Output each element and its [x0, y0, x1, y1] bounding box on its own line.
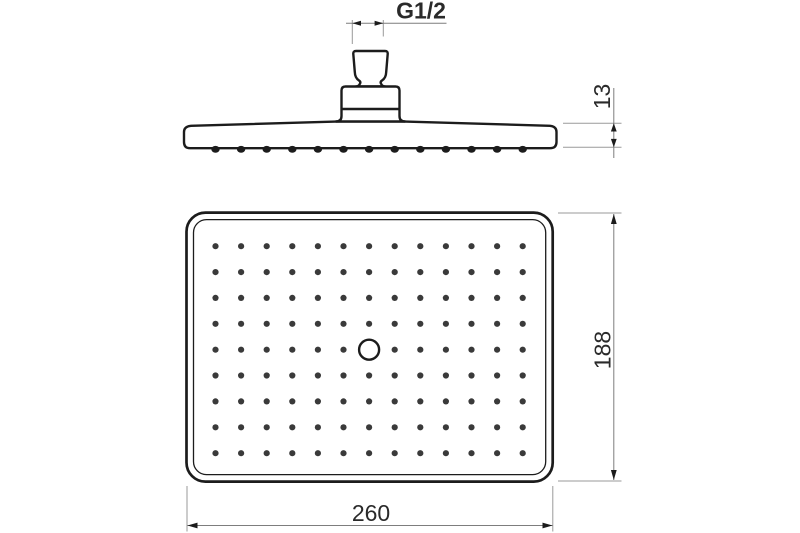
nozzle-dot [264, 450, 270, 456]
nozzle-dot [289, 269, 295, 275]
nozzle-dot [392, 243, 398, 249]
nozzle-dot [366, 398, 372, 404]
nozzle-dot [238, 321, 244, 327]
nozzle-dot [468, 450, 474, 456]
nozzle-dot [520, 295, 526, 301]
nozzle-dot [494, 269, 500, 275]
nozzle-dot [468, 243, 474, 249]
nozzle-bump [391, 146, 399, 153]
nozzle-dot [340, 295, 346, 301]
nozzle-dot [238, 347, 244, 353]
nozzle-dot [264, 269, 270, 275]
nozzle-dot [494, 450, 500, 456]
nozzle-dot [212, 295, 218, 301]
nozzle-dot [238, 372, 244, 378]
thickness-value-label: 13 [589, 84, 615, 110]
nozzle-bump [314, 146, 322, 153]
nozzle-dot [443, 295, 449, 301]
nozzle-dot [289, 321, 295, 327]
technical-drawing-canvas: G1/2 13 188 [0, 0, 800, 533]
nozzle-dot [417, 243, 423, 249]
nozzle-dot [264, 372, 270, 378]
nozzle-dot [494, 372, 500, 378]
thread-arrow-right [375, 21, 384, 26]
nozzle-dot [468, 347, 474, 353]
nozzle-bump [237, 146, 245, 153]
nozzle-dot [315, 450, 321, 456]
nozzle-dot [417, 424, 423, 430]
nozzle-dot [212, 372, 218, 378]
nozzle-dot [366, 321, 372, 327]
nozzle-bump [416, 146, 424, 153]
nozzle-dot [417, 372, 423, 378]
nozzle-dot [417, 295, 423, 301]
nozzle-dot [264, 424, 270, 430]
nozzle-bump [519, 146, 527, 153]
nozzle-dot [443, 398, 449, 404]
nozzle-dot [417, 398, 423, 404]
head-body-outline [184, 121, 557, 148]
collar-outline [336, 87, 405, 122]
nozzle-dot [289, 295, 295, 301]
nozzle-dot [315, 398, 321, 404]
nozzle-dot [392, 269, 398, 275]
nozzle-dot [520, 243, 526, 249]
nozzle-dot [289, 424, 295, 430]
nozzle-dot [494, 321, 500, 327]
nozzle-dot [520, 347, 526, 353]
nozzle-dot [264, 321, 270, 327]
nozzle-dot [468, 321, 474, 327]
nozzle-dot [238, 450, 244, 456]
nozzle-dot [264, 398, 270, 404]
height-arrow-bottom [611, 470, 617, 480]
nozzle-dot [340, 450, 346, 456]
nozzle-dot [520, 269, 526, 275]
nozzle-dot [366, 243, 372, 249]
nozzle-dot [443, 243, 449, 249]
nozzle-dot [315, 424, 321, 430]
nozzle-dot [417, 321, 423, 327]
height-value-label: 188 [590, 331, 616, 369]
nozzle-dot [443, 372, 449, 378]
nozzle-dot [443, 424, 449, 430]
thickness-arrow-top [611, 123, 617, 131]
nozzle-bump [263, 146, 271, 153]
nozzle-dot [443, 347, 449, 353]
nozzle-dot [392, 321, 398, 327]
nozzle-dot [212, 321, 218, 327]
nozzle-dot [315, 243, 321, 249]
nozzle-dot [289, 450, 295, 456]
nozzle-dot [315, 321, 321, 327]
nozzle-bump [288, 146, 296, 153]
nozzle-bump [211, 146, 219, 153]
nozzle-bump [493, 146, 501, 153]
nozzle-dot [417, 347, 423, 353]
face-view [187, 213, 553, 482]
nozzle-dot [520, 398, 526, 404]
nozzle-dot [315, 269, 321, 275]
nozzle-bump [339, 146, 347, 153]
nozzle-dot [238, 398, 244, 404]
nozzle-dot [212, 424, 218, 430]
nozzle-dot [264, 295, 270, 301]
nozzle-dot [468, 269, 474, 275]
nozzle-dot [494, 347, 500, 353]
center-outlet-circle [359, 340, 379, 360]
nozzle-dot [417, 450, 423, 456]
nozzle-dot [366, 424, 372, 430]
nozzle-dot [212, 398, 218, 404]
thickness-arrow-bottom [611, 139, 617, 147]
nozzle-dot [443, 450, 449, 456]
nozzle-dot [238, 269, 244, 275]
nozzle-dot [264, 347, 270, 353]
width-dimension: 260 [187, 486, 553, 532]
nozzle-dot [212, 450, 218, 456]
nozzle-dot [417, 269, 423, 275]
nozzle-dot [443, 321, 449, 327]
nozzle-dot [392, 372, 398, 378]
nozzle-dot [315, 347, 321, 353]
nozzle-dot [468, 424, 474, 430]
nozzle-dot [340, 243, 346, 249]
nozzle-dot [366, 295, 372, 301]
nozzle-dot [289, 398, 295, 404]
nozzle-dot [238, 295, 244, 301]
nozzle-dot [494, 295, 500, 301]
nozzle-dot [212, 269, 218, 275]
nozzle-dot [494, 398, 500, 404]
nozzle-dot [264, 243, 270, 249]
nozzle-dot [340, 269, 346, 275]
nozzle-dot [443, 269, 449, 275]
nozzle-dot [340, 424, 346, 430]
nozzle-bump [467, 146, 475, 153]
nozzle-dot [315, 295, 321, 301]
nozzle-dot [520, 424, 526, 430]
nozzle-dot [366, 269, 372, 275]
nozzle-dot [340, 347, 346, 353]
nozzle-dot [520, 450, 526, 456]
nozzle-dot [212, 347, 218, 353]
nozzle-bump [442, 146, 450, 153]
nozzle-bump [365, 146, 373, 153]
nozzle-dot [520, 321, 526, 327]
thread-dimension: G1/2 [346, 0, 447, 44]
nozzle-dot [289, 347, 295, 353]
nozzle-dot [392, 424, 398, 430]
nozzle-dot [392, 347, 398, 353]
width-value-label: 260 [352, 500, 390, 526]
height-arrow-top [611, 214, 617, 224]
thread-size-label: G1/2 [396, 0, 446, 24]
height-dimension: 188 [558, 213, 622, 481]
nozzle-dot [366, 372, 372, 378]
nozzle-dot [392, 450, 398, 456]
nozzle-dot [392, 398, 398, 404]
nozzle-dot [340, 321, 346, 327]
nozzle-dot [289, 243, 295, 249]
nozzle-dot [315, 372, 321, 378]
shower-head-dimension-drawing: G1/2 13 188 [0, 0, 800, 533]
nozzle-dot [340, 398, 346, 404]
nozzle-dot [520, 372, 526, 378]
width-arrow-left [188, 523, 198, 529]
nozzle-dot [289, 372, 295, 378]
width-arrow-right [543, 523, 553, 529]
nozzle-dot [392, 295, 398, 301]
nozzle-dot [366, 450, 372, 456]
nozzle-dot [494, 424, 500, 430]
thickness-dimension: 13 [563, 84, 622, 158]
nozzle-dot [494, 243, 500, 249]
nozzle-dot [468, 295, 474, 301]
nozzle-dot [238, 243, 244, 249]
nozzle-dot [468, 398, 474, 404]
nozzle-dot [212, 243, 218, 249]
nozzle-dot [468, 372, 474, 378]
nozzle-dot [238, 424, 244, 430]
side-profile-view [184, 51, 557, 153]
thread-arrow-left [352, 21, 361, 26]
thread-connector-outline [353, 51, 387, 87]
nozzle-dot [340, 372, 346, 378]
